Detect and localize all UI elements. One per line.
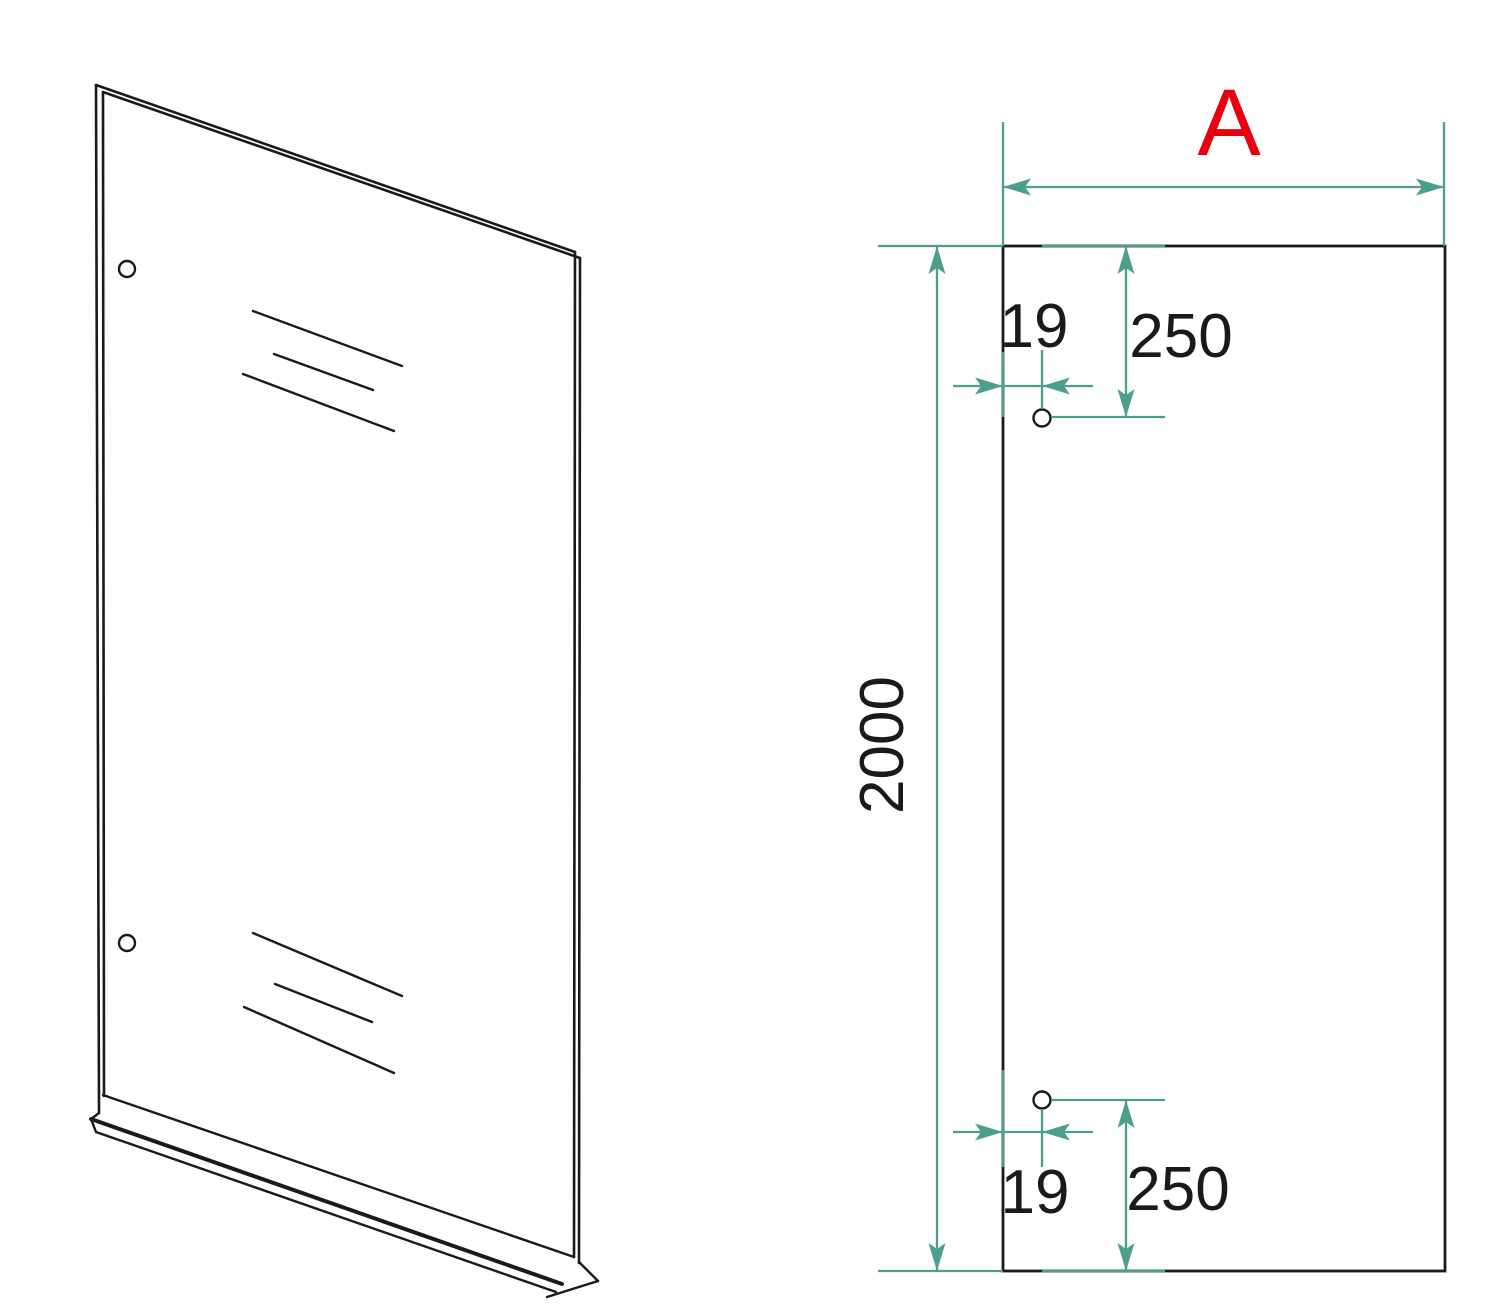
top-hole-vertical-offset-label: 250: [1129, 302, 1232, 371]
width-dimension-label: A: [1197, 70, 1261, 176]
dimension-lines: [878, 122, 1444, 1271]
bottom-hole-vertical-offset-label: 250: [1126, 1155, 1229, 1224]
panel-top-edge-inner: [103, 92, 580, 258]
base-seal-top-edge: [103, 1095, 574, 1257]
panel-right-edge-outer: [579, 258, 580, 1263]
panel-right-edge-inner: [574, 252, 575, 1257]
bottom-hole-edge-offset-label: 19: [1001, 1158, 1070, 1227]
panel-left-edge-outer: [96, 85, 99, 1113]
front-view-outline: [1003, 246, 1445, 1271]
base-seal-front-edge: [91, 1119, 562, 1284]
top-hole-edge-offset-label: 19: [1000, 292, 1069, 361]
bottom-mounting-hole-front: [1034, 1092, 1051, 1109]
base-seal-bottom-edge: [96, 1132, 556, 1292]
panel-left-edge-inner: [103, 92, 104, 1096]
glass-panel-front-view: [1003, 246, 1445, 1271]
glass-panel-technical-drawing: A 2000 19 250 19 250: [0, 0, 1509, 1316]
glass-reflection-lines-upper: [243, 311, 402, 431]
dimension-labels: A 2000 19 250 19 250: [848, 70, 1261, 1227]
top-mounting-hole-front: [1034, 410, 1051, 427]
base-seal-right-flare: [579, 1262, 598, 1281]
top-mounting-hole-3d: [119, 261, 135, 277]
height-dimension-label: 2000: [848, 676, 917, 814]
glass-reflection-lines-lower: [244, 933, 402, 1073]
bottom-mounting-hole-3d: [119, 935, 135, 951]
panel-top-edge-outer: [96, 85, 575, 252]
glass-panel-3d-view: [91, 85, 598, 1297]
technical-drawing-page: A 2000 19 250 19 250: [0, 0, 1509, 1316]
